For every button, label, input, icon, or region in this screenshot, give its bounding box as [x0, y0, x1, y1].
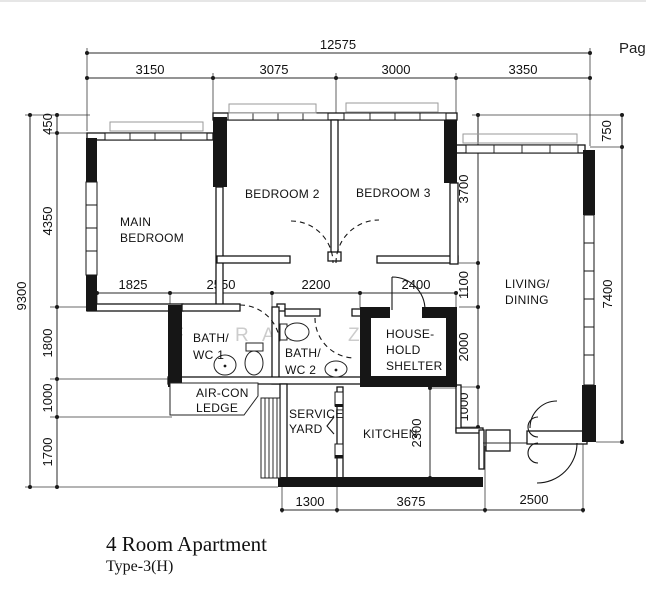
- bath1-toilet-tank: [246, 343, 263, 351]
- plan-title: 4 Room Apartment: [106, 532, 267, 556]
- dimension-labels: 12575 3150 3075 3000 3350 1825 2550 2200…: [14, 37, 615, 509]
- dim-bottom-1: 1300: [296, 494, 325, 509]
- label-household-shelter: SHELTER: [386, 359, 443, 373]
- dim-mid-1: 1825: [119, 277, 148, 292]
- dim-inner-1100: 1100: [456, 271, 471, 299]
- dim-top-2: 3075: [260, 62, 289, 77]
- page-label: Page: [619, 40, 646, 57]
- dim-top-1: 3150: [136, 62, 165, 77]
- plan-subtitle: Type-3(H): [106, 558, 173, 575]
- bath1-toilet-bowl: [245, 351, 263, 375]
- label-aircon-ledge: LEDGE: [196, 401, 238, 415]
- label-bedroom3: BEDROOM 3: [356, 186, 431, 200]
- floorplan-page: 12575 3150 3075 3000 3350 1825 2550 2200…: [0, 0, 646, 600]
- dim-right-750: 750: [599, 120, 614, 142]
- label-service-yard: SERVICE: [289, 407, 344, 421]
- dim-mid-3: 2200: [302, 277, 331, 292]
- bedroom2-door-swing: [291, 221, 333, 263]
- dim-left-1: 450: [40, 113, 55, 135]
- label-household-shelter: HOLD: [386, 343, 421, 357]
- label-main-bedroom: MAIN: [120, 215, 151, 229]
- label-household-shelter: HOUSE-: [386, 327, 434, 341]
- label-aircon-ledge: AIR-CON: [196, 386, 249, 400]
- dim-overall-width: 12575: [320, 37, 356, 52]
- label-bath-wc2: WC 2: [285, 363, 316, 377]
- dim-left-5: 1700: [40, 438, 55, 467]
- dim-bottom-2: 3675: [397, 494, 426, 509]
- label-living-dining: LIVING/: [505, 277, 550, 291]
- floor-plan-drawing: 12575 3150 3075 3000 3350 1825 2550 2200…: [0, 0, 646, 600]
- entrance-door-leaf-small: [530, 401, 557, 428]
- label-bath-wc2: BATH/: [285, 346, 321, 360]
- dim-mid-4: 2400: [402, 277, 431, 292]
- dim-overall-height: 9300: [14, 282, 29, 311]
- label-bath-wc1: WC 1: [193, 348, 224, 362]
- label-bath-wc1: BATH/: [193, 331, 229, 345]
- bedroom3-door-swing: [336, 220, 379, 263]
- dim-left-2: 4350: [40, 207, 55, 236]
- dim-left-4: 1000: [40, 384, 55, 413]
- label-service-yard: YARD: [289, 422, 323, 436]
- watermark-letter: Z: [348, 325, 360, 346]
- dim-inner-2000: 2000: [456, 333, 471, 362]
- dim-top-4: 3350: [509, 62, 538, 77]
- dim-bottom-3: 2500: [520, 492, 549, 507]
- bath2-toilet-bowl: [285, 323, 309, 341]
- dim-top-3: 3000: [382, 62, 411, 77]
- label-bedroom2: BEDROOM 2: [245, 187, 320, 201]
- label-kitchen: KITCHEN: [363, 427, 418, 441]
- label-living-dining: DINING: [505, 293, 549, 307]
- dim-right-7400: 7400: [600, 280, 615, 309]
- label-main-bedroom: BEDROOM: [120, 231, 184, 245]
- entrance-door-leaf-main: [537, 443, 577, 483]
- dim-left-3: 1800: [40, 329, 55, 358]
